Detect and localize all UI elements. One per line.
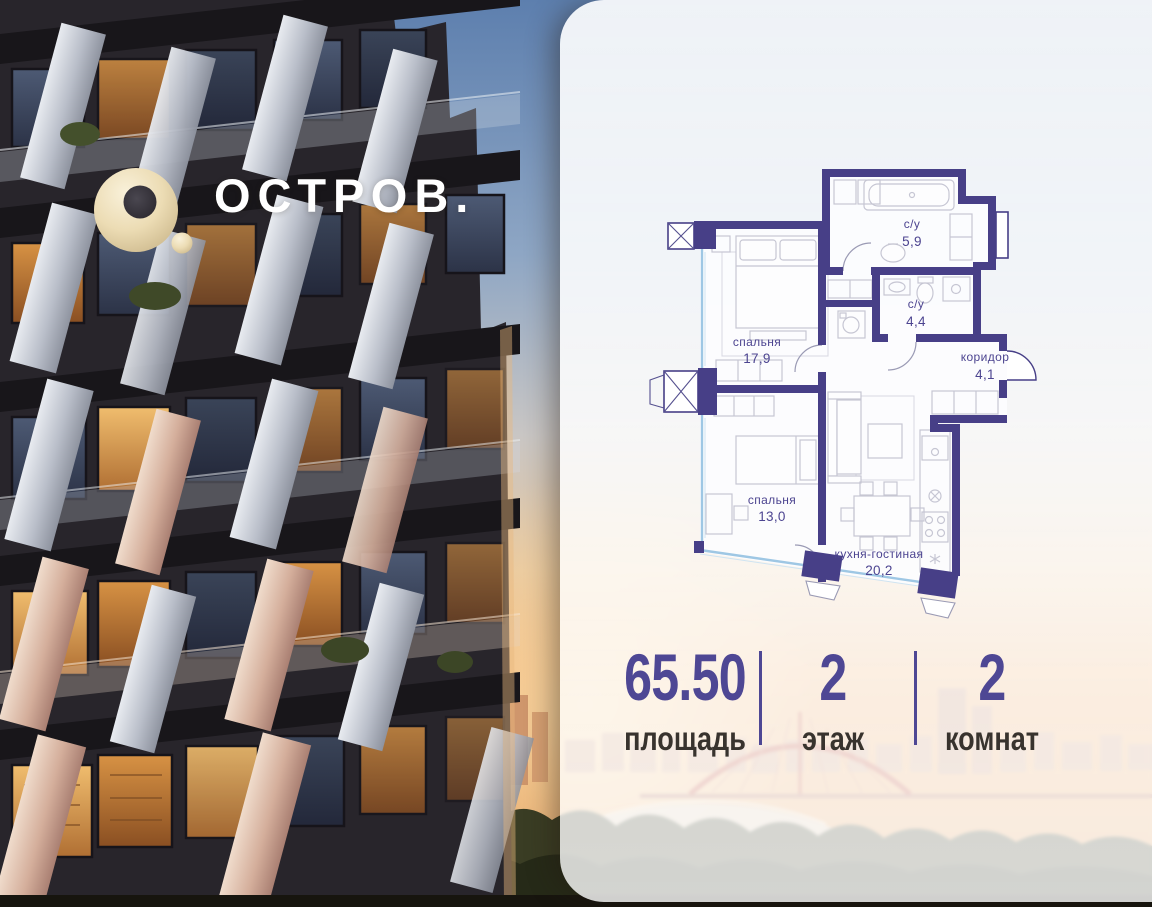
building-facade [0,0,534,907]
ostrov-ring-icon [90,158,210,262]
brand-name: ОСТРОВ. [214,172,475,219]
brand-logo: ОСТРОВ. [90,158,570,262]
info-card [560,0,1152,902]
promo-banner: ОСТРОВ. [0,0,1152,907]
